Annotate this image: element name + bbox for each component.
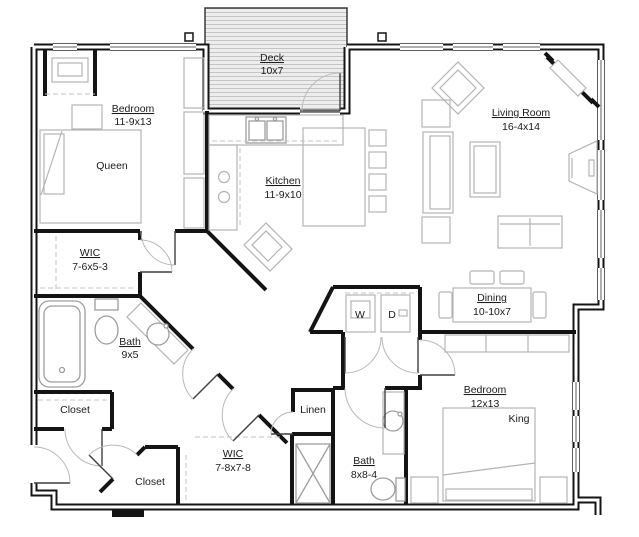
queen-bed-icon [40, 130, 141, 223]
wall-marker [378, 33, 386, 41]
kitchen-dims: 11-9x10 [264, 189, 301, 201]
coffee-table-icon [470, 142, 500, 197]
fireplace-icon [545, 53, 599, 107]
washer-label: W [355, 309, 365, 321]
dresser-detail [58, 63, 82, 76]
bath1-label: Bath [119, 336, 141, 348]
wardrobe-icon [184, 58, 204, 108]
room-labels: Deck 10x7 Bedroom 11-9x13 Queen Living R… [60, 52, 550, 488]
wall-stub [112, 510, 144, 517]
accent-chair-icon [432, 62, 484, 114]
king-bed-label: King [508, 413, 529, 425]
stove-icon [244, 223, 292, 271]
toilet-icon [371, 478, 405, 501]
closet2-label: Closet [135, 476, 165, 488]
cooktop-burner-icon [219, 172, 230, 183]
nightstand-icon [72, 105, 102, 129]
wardrobe-icon [184, 178, 204, 228]
floor-plan-drawing: Deck 10x7 Bedroom 11-9x13 Queen Living R… [0, 0, 639, 537]
tv-stand-icon [569, 141, 597, 194]
bar-stool-icon [369, 196, 386, 212]
wardrobe-icon [184, 112, 204, 174]
bath2-label: Bath [353, 455, 375, 467]
bath1-dims: 9x5 [122, 349, 139, 361]
sideboard-icon [445, 335, 569, 352]
vanity-sink-icon [383, 392, 404, 454]
dining-chair-icon [533, 292, 546, 318]
dining-chair-icon [439, 292, 452, 318]
kitchen-island [303, 128, 365, 226]
nightstand-icon [540, 477, 567, 503]
wic2-label: WIC [223, 448, 244, 460]
dryer-label: D [388, 309, 396, 321]
wic1-dims: 7-6x5-3 [72, 261, 108, 273]
bedroom2-label: Bedroom [464, 384, 507, 396]
wic2-dims: 7-8x7-8 [215, 462, 251, 474]
dining-label: Dining [477, 292, 507, 304]
floor-plan: Deck 10x7 Bedroom 11-9x13 Queen Living R… [0, 0, 639, 537]
side-table-icon [422, 100, 450, 127]
dining-dims: 10-10x7 [473, 306, 511, 318]
nightstand-icon [411, 477, 438, 503]
kitchen-counter [209, 115, 343, 230]
deck-dims: 10x7 [261, 65, 284, 77]
bathtub-icon [39, 301, 85, 387]
linen-label: Linen [300, 404, 326, 416]
dining-chair-icon [470, 271, 494, 284]
ottoman-icon [422, 217, 450, 243]
deck-label: Deck [260, 52, 285, 64]
dining-chair-icon [500, 271, 524, 284]
toilet-icon [95, 299, 118, 344]
bar-stool-icon [369, 130, 386, 146]
living-room-dims: 16-4x14 [502, 121, 540, 133]
shower-icon [296, 444, 330, 503]
bath2-dims: 8x8-4 [351, 469, 377, 481]
bar-stool-icon [369, 174, 386, 190]
closet1-label: Closet [60, 404, 90, 416]
bedroom1-dims: 11-9x13 [114, 116, 151, 128]
bedroom1-label: Bedroom [112, 103, 155, 115]
wic1-label: WIC [80, 247, 101, 259]
bedroom2-dims: 12x13 [471, 398, 500, 410]
queen-bed-label: Queen [96, 160, 128, 172]
cooktop-burner-icon [219, 192, 230, 203]
kitchen-label: Kitchen [265, 175, 300, 187]
bar-stool-icon [369, 152, 386, 168]
loveseat-icon [498, 216, 562, 248]
wall-marker [185, 33, 193, 41]
sofa-icon [423, 132, 453, 213]
living-room-label: Living Room [492, 107, 551, 119]
